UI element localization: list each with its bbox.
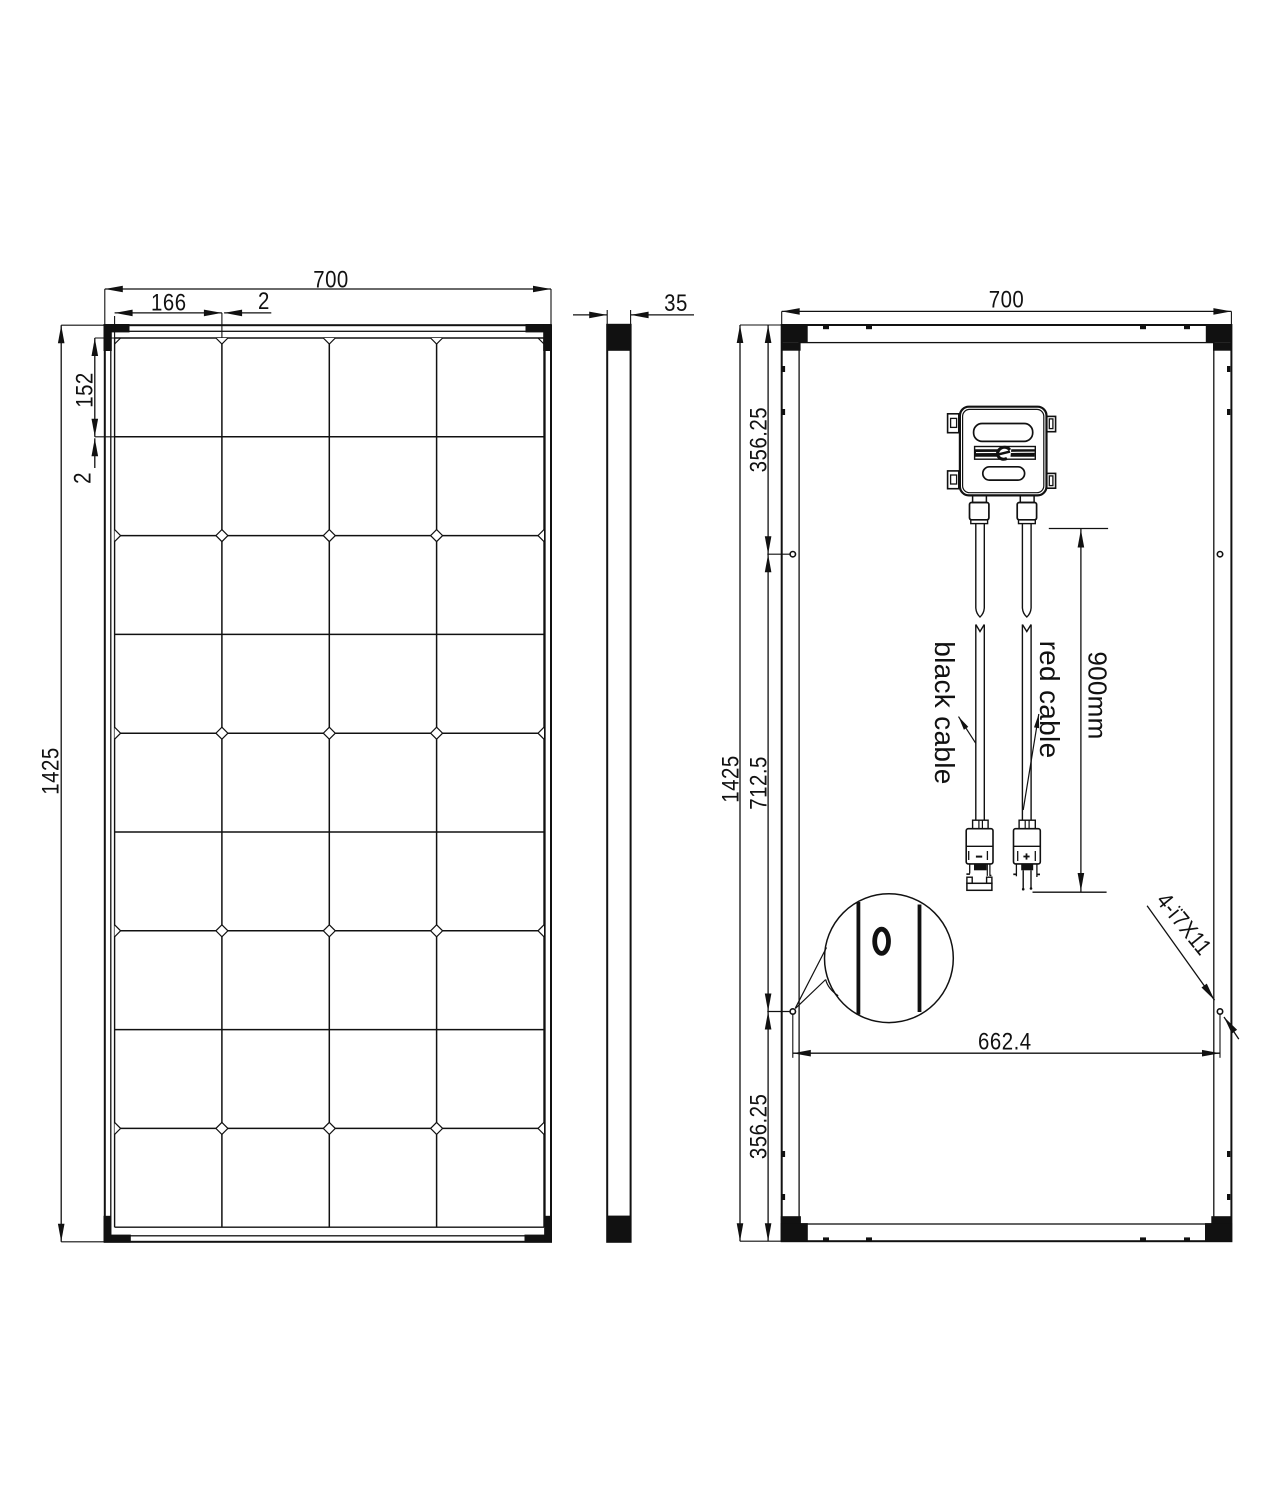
svg-text:35: 35: [664, 290, 688, 317]
svg-text:712.5: 712.5: [745, 756, 772, 810]
svg-text:900mm: 900mm: [1083, 651, 1113, 739]
svg-text:662.4: 662.4: [978, 1028, 1032, 1055]
svg-text:152: 152: [71, 372, 98, 408]
svg-text:700: 700: [313, 266, 349, 293]
svg-text:red cable: red cable: [1034, 641, 1065, 759]
svg-text:356.25: 356.25: [745, 1094, 772, 1159]
svg-text:1425: 1425: [717, 755, 744, 802]
svg-text:1425: 1425: [37, 747, 64, 794]
svg-text:black cable: black cable: [929, 641, 960, 784]
svg-text:700: 700: [989, 286, 1025, 313]
svg-text:166: 166: [151, 289, 187, 316]
svg-text:2: 2: [69, 472, 96, 484]
svg-text:356.25: 356.25: [745, 407, 772, 472]
svg-text:2: 2: [258, 288, 270, 315]
